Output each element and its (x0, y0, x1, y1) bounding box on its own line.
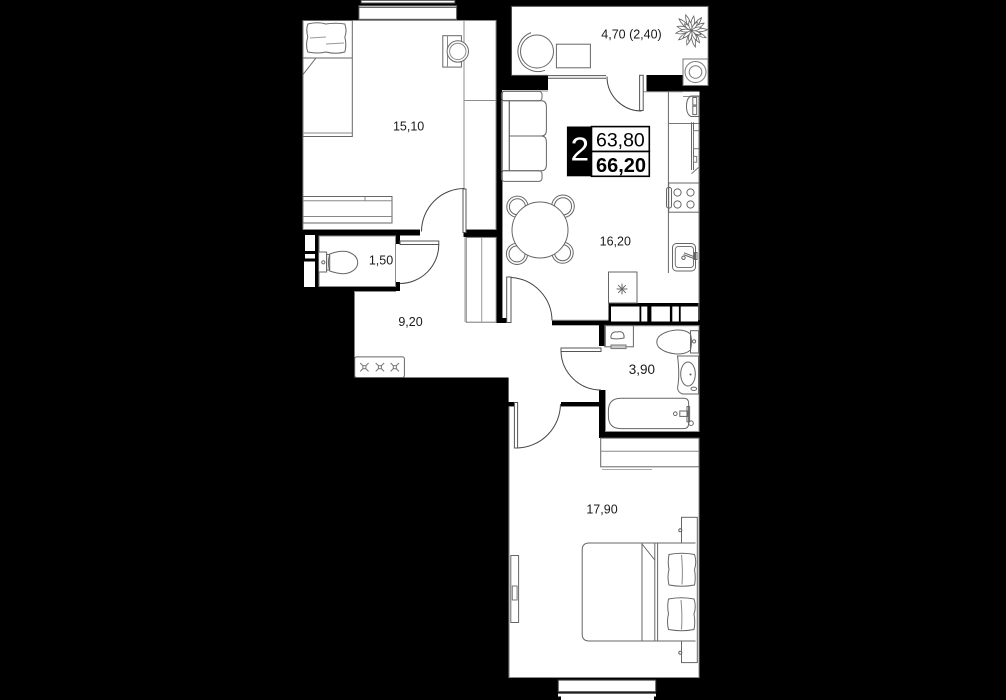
svg-text:1,50: 1,50 (369, 254, 393, 268)
svg-text:15,10: 15,10 (393, 119, 424, 133)
svg-text:9,20: 9,20 (398, 315, 422, 329)
svg-text:63,80: 63,80 (596, 129, 645, 151)
svg-text:17,90: 17,90 (586, 502, 617, 516)
svg-text:66,20: 66,20 (596, 155, 646, 177)
svg-text:3,90: 3,90 (629, 362, 655, 377)
svg-text:4,70 (2,40): 4,70 (2,40) (601, 27, 661, 41)
svg-text:16,20: 16,20 (600, 234, 631, 248)
svg-text:2: 2 (570, 132, 589, 169)
